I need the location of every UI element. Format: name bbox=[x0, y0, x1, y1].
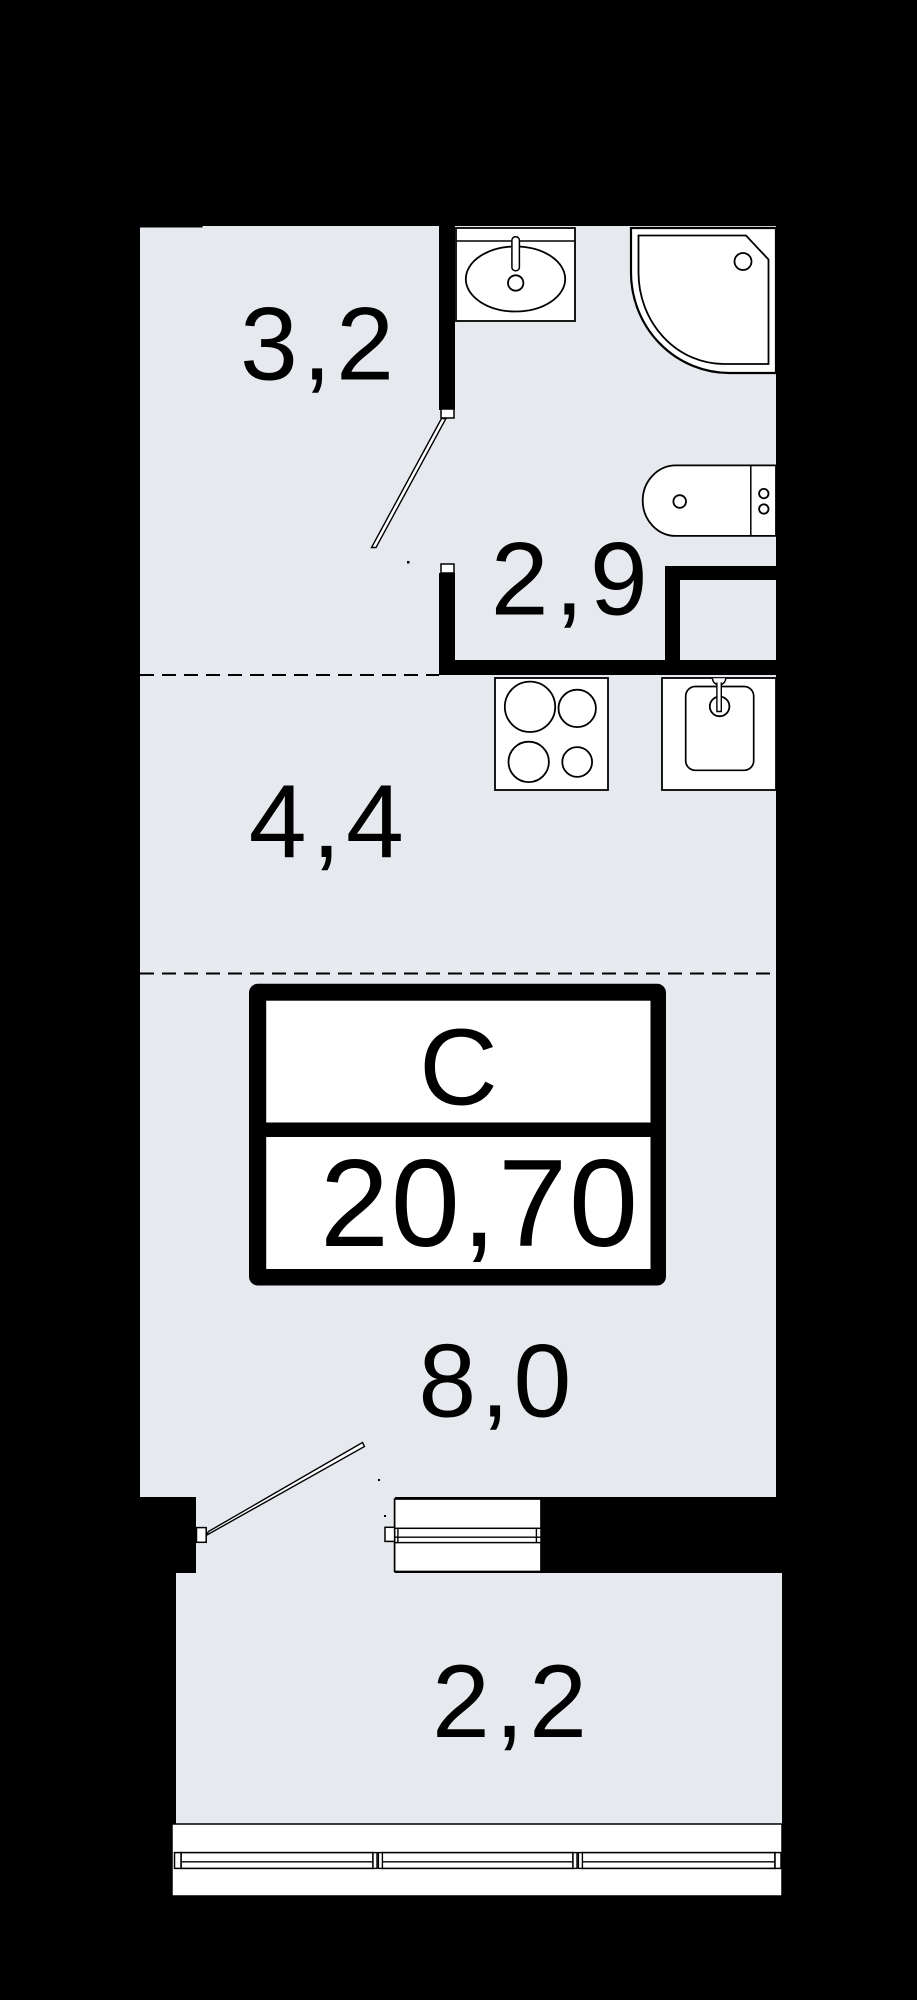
svg-text:3,2: 3,2 bbox=[240, 287, 394, 403]
svg-text:2,9: 2,9 bbox=[491, 522, 648, 638]
svg-text:С: С bbox=[419, 1007, 498, 1129]
svg-text:2,2: 2,2 bbox=[432, 1644, 587, 1760]
svg-text:8,0: 8,0 bbox=[418, 1324, 571, 1440]
svg-text:4,4: 4,4 bbox=[249, 764, 404, 880]
svg-text:20,70: 20,70 bbox=[320, 1135, 638, 1273]
